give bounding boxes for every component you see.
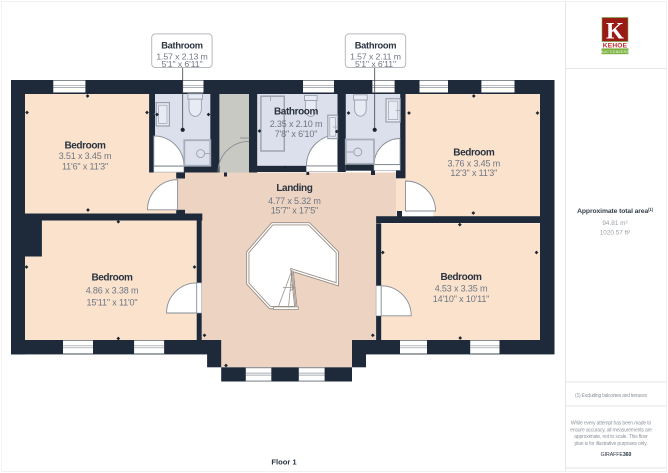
svg-text:GIRAFFE360: GIRAFFE360 [601,452,632,458]
svg-text:Bathroom: Bathroom [355,40,397,50]
svg-text:4.53 x 3.35 m: 4.53 x 3.35 m [435,284,488,294]
svg-text:K: K [606,19,624,44]
svg-text:Approximate total area(1): Approximate total area(1) [577,207,653,215]
svg-text:ensure accuracy, all measureme: ensure accuracy, all measurements are [570,427,652,433]
svg-text:Bedroom: Bedroom [453,148,495,159]
svg-text:14'10" x 10'11": 14'10" x 10'11" [433,294,489,304]
svg-text:2.35 x 2.10 m: 2.35 x 2.10 m [270,119,323,129]
svg-text:Bedroom: Bedroom [440,272,482,283]
svg-text:3.51 x 3.45 m: 3.51 x 3.45 m [59,151,112,161]
svg-text:(1) Excluding balconies and te: (1) Excluding balconies and terraces [575,393,648,399]
svg-text:4.77 x 5.32 m: 4.77 x 5.32 m [268,196,321,206]
svg-text:1020.57 ft²: 1020.57 ft² [600,230,631,237]
svg-text:Bathroom: Bathroom [161,40,203,50]
svg-text:5'1" x 6'11": 5'1" x 6'11" [355,59,396,69]
svg-text:approximate, not to scale. Thi: approximate, not to scale. This floor [574,434,648,440]
svg-text:Landing: Landing [276,183,312,194]
svg-text:KEHOE: KEHOE [603,42,628,49]
svg-text:Bedroom: Bedroom [64,140,106,151]
svg-text:5'1" x 6'11": 5'1" x 6'11" [162,59,203,69]
svg-text:While every attempt has been m: While every attempt has been made to [571,421,652,427]
svg-text:15'11" x 11'0": 15'11" x 11'0" [87,298,138,308]
svg-text:plan is for illustrative purpo: plan is for illustrative purposes only. [575,441,648,447]
svg-text:Bathroom: Bathroom [274,107,319,118]
svg-text:7'8" x 6'10": 7'8" x 6'10" [275,129,318,139]
svg-text:Floor 1: Floor 1 [271,457,297,466]
svg-text:11'6" x 11'3": 11'6" x 11'3" [62,161,108,171]
svg-text:4.86 x 3.38 m: 4.86 x 3.38 m [86,285,139,295]
svg-text:12'3" x 11'3": 12'3" x 11'3" [450,168,497,178]
svg-text:15'7" x 17'5": 15'7" x 17'5" [271,206,318,216]
svg-text:AUCTIONEERS: AUCTIONEERS [601,50,629,54]
svg-text:Bedroom: Bedroom [91,272,133,283]
svg-text:94.81 m²: 94.81 m² [602,220,627,227]
